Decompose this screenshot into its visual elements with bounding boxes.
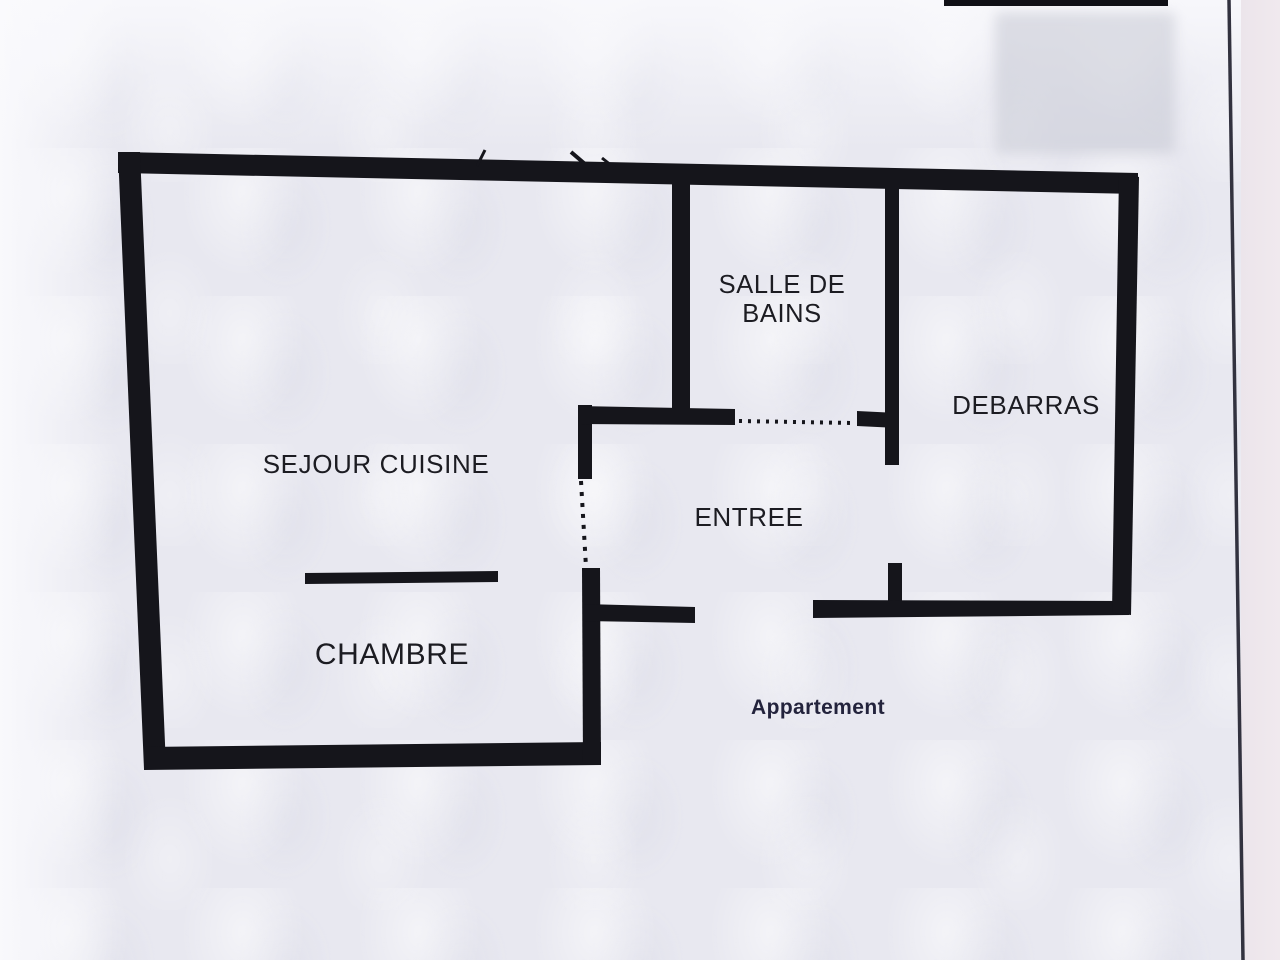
wall-entree-top: [578, 406, 735, 425]
room-label-salle-de-bains-line2: BAINS: [719, 300, 846, 329]
room-label-entree: ENTREE: [694, 502, 803, 533]
room-label-salle-de-bains: SALLE DE BAINS: [719, 271, 846, 329]
plan-caption-appartement: Appartement: [751, 696, 885, 720]
room-label-chambre: CHAMBRE: [315, 638, 469, 672]
room-label-sejour-cuisine: SEJOUR CUISINE: [263, 449, 490, 480]
wall-bathroom-right: [885, 173, 899, 465]
wall-outer-right: [1112, 173, 1139, 615]
scanner-edge-strip: [944, 0, 1168, 6]
door-dash-entree-sejour: [581, 481, 586, 567]
partition-sejour-chambre: [305, 571, 498, 584]
wall-bathroom-left: [672, 180, 690, 414]
room-label-salle-de-bains-line1: SALLE DE: [719, 271, 846, 300]
room-label-debarras: DEBARRAS: [952, 390, 1100, 421]
door-dash-entree-bathroom: [739, 421, 853, 423]
wall-chambre-bottom: [144, 742, 601, 770]
wall-outer-left: [118, 152, 166, 769]
wall-outer-top: [118, 152, 1138, 194]
door-dashes-group: [581, 421, 853, 567]
wall-bottom-right: [813, 600, 1129, 618]
scanned-floorplan-photo: SEJOUR CUISINE SALLE DE BAINS DEBARRAS E…: [0, 0, 1280, 960]
wall-chambre-right: [582, 568, 601, 764]
paper-fold-line: [1229, 0, 1243, 960]
wall-entree-bottom-left: [584, 604, 695, 623]
floorplan-walls-svg: [0, 0, 1280, 960]
